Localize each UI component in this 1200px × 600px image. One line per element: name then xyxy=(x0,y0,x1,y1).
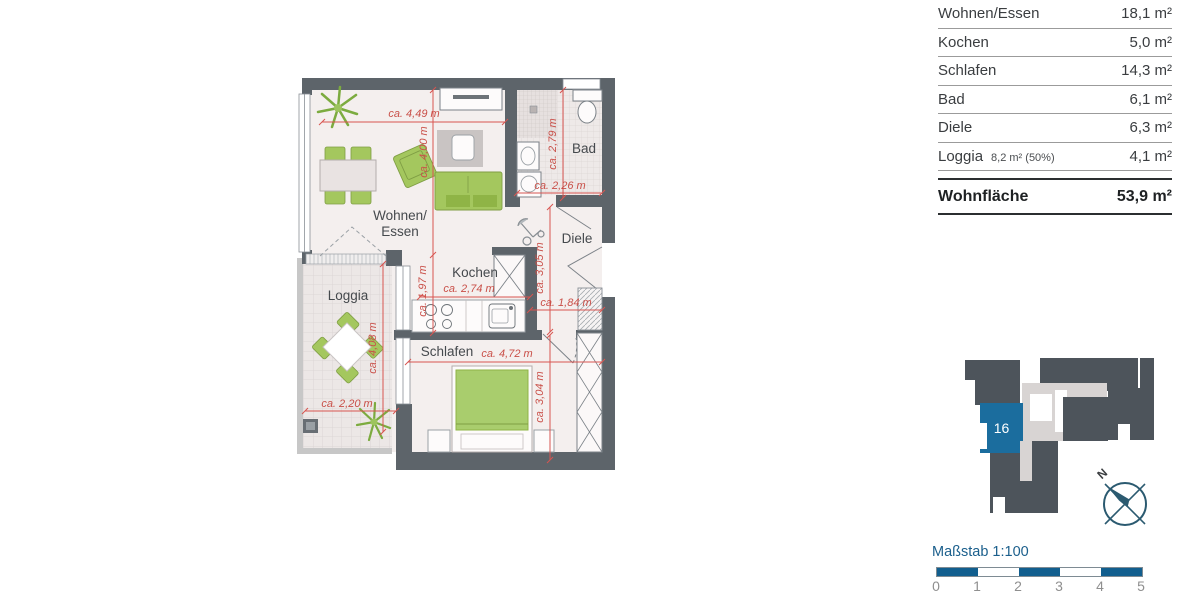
total-label: Wohnfläche xyxy=(938,188,1028,206)
window-loggia-band xyxy=(306,254,386,264)
scale-tick: 5 xyxy=(1137,578,1145,594)
scale-segment xyxy=(978,568,1019,576)
room-name: Loggia xyxy=(938,148,983,165)
area-table: Wohnen/Essen 18,1 m² Kochen 5,0 m² Schla… xyxy=(938,0,1172,215)
floor-plan: ca. 4,49 m ca. 4,00 m ca. 2,79 m ca. 2,2… xyxy=(295,72,625,477)
room-area: 5,0 m² xyxy=(1129,34,1172,51)
label-loggia: Loggia xyxy=(328,288,369,303)
table-row: Kochen 5,0 m² xyxy=(938,29,1172,58)
north-needle xyxy=(1107,486,1130,508)
label-bad: Bad xyxy=(572,141,596,156)
svg-text:ca. 1,97 m: ca. 1,97 m xyxy=(417,265,429,316)
svg-text:ca. 4,72 m: ca. 4,72 m xyxy=(481,348,532,360)
table-row: Loggia 8,2 m² (50%) 4,1 m² xyxy=(938,143,1172,172)
scale-segment xyxy=(1019,568,1060,576)
room-area: 6,3 m² xyxy=(1129,119,1172,136)
building-block xyxy=(1108,358,1154,388)
room-name: Schlafen xyxy=(938,62,996,79)
scale-tick: 1 xyxy=(973,578,981,594)
north-label: N xyxy=(1094,466,1110,482)
apartment-room xyxy=(1030,394,1052,421)
washbasin xyxy=(517,142,539,170)
building-gap xyxy=(965,380,975,405)
page: ca. 4,49 m ca. 4,00 m ca. 2,79 m ca. 2,2… xyxy=(0,0,1200,600)
table-row: Wohnen/Essen 18,1 m² xyxy=(938,0,1172,29)
svg-text:ca. 4,08 m: ca. 4,08 m xyxy=(367,322,379,373)
room-area: 14,3 m² xyxy=(1121,62,1172,79)
scale-numbers: 0 1 2 3 4 5 xyxy=(936,578,1142,596)
total-area: 53,9 m² xyxy=(1117,188,1172,206)
table-total-row: Wohnfläche 53,9 m² xyxy=(938,178,1172,215)
svg-text:ca. 2,74 m: ca. 2,74 m xyxy=(443,283,494,295)
svg-text:ca. 4,49 m: ca. 4,49 m xyxy=(388,108,439,120)
tv xyxy=(453,95,489,99)
toilet xyxy=(578,101,596,123)
room-area: 4,1 m² xyxy=(1129,148,1172,165)
table-row: Schlafen 14,3 m² xyxy=(938,57,1172,86)
bed-pillows xyxy=(461,434,523,449)
scale-tick: 4 xyxy=(1096,578,1104,594)
room-name: Kochen xyxy=(938,34,989,51)
building-gap xyxy=(1118,424,1130,440)
unit-number: 16 xyxy=(994,420,1010,436)
label-wohnen: Wohnen/ xyxy=(373,208,427,223)
svg-text:ca. 1,84 m: ca. 1,84 m xyxy=(540,297,591,309)
building-block xyxy=(1032,441,1058,509)
label-diele: Diele xyxy=(562,231,593,246)
window-bath xyxy=(563,79,600,89)
building-gap xyxy=(993,497,1005,513)
shower-drain xyxy=(530,106,537,113)
wardrobe-hall xyxy=(578,288,602,330)
room-area: 18,1 m² xyxy=(1121,5,1172,22)
building-gap xyxy=(975,423,987,449)
svg-text:Essen: Essen xyxy=(381,224,419,239)
room-area-note: 8,2 m² (50%) xyxy=(991,152,1129,164)
building-block xyxy=(1108,388,1154,440)
compass-icon: N xyxy=(1090,464,1156,534)
toilet-tank xyxy=(573,90,602,101)
svg-text:ca. 3,05 m: ca. 3,05 m xyxy=(534,242,546,293)
sofa xyxy=(435,172,502,210)
building-block xyxy=(1063,397,1108,441)
label-schlafen: Schlafen xyxy=(421,344,474,359)
lounge-chair xyxy=(452,135,474,160)
scale-segment xyxy=(1060,568,1101,576)
building-gap xyxy=(1138,358,1140,388)
bed-duvet xyxy=(456,370,528,430)
svg-text:ca. 4,00 m: ca. 4,00 m xyxy=(418,126,430,177)
scale-tick: 2 xyxy=(1014,578,1022,594)
svg-text:ca. 2,26 m: ca. 2,26 m xyxy=(534,180,585,192)
svg-text:ca. 2,79 m: ca. 2,79 m xyxy=(547,118,559,169)
table-row: Diele 6,3 m² xyxy=(938,114,1172,143)
label-kochen: Kochen xyxy=(452,265,498,280)
scale-title: Maßstab 1:100 xyxy=(932,544,1029,560)
entrance-opening xyxy=(602,243,615,297)
scale-tick: 0 xyxy=(932,578,940,594)
room-name: Bad xyxy=(938,91,965,108)
nightstand-right xyxy=(534,430,554,452)
building-block-light xyxy=(1020,441,1032,481)
svg-text:ca. 3,04 m: ca. 3,04 m xyxy=(534,371,546,422)
scale-bar xyxy=(936,567,1143,577)
table-row: Bad 6,1 m² xyxy=(938,86,1172,115)
scale-segment xyxy=(937,568,978,576)
scale-tick: 3 xyxy=(1055,578,1063,594)
room-name: Wohnen/Essen xyxy=(938,5,1039,22)
dining-table xyxy=(320,160,376,191)
scale-segment xyxy=(1101,568,1142,576)
room-name: Diele xyxy=(938,119,972,136)
room-area: 6,1 m² xyxy=(1129,91,1172,108)
svg-text:ca. 2,20 m: ca. 2,20 m xyxy=(321,398,372,410)
nightstand-left xyxy=(428,430,450,452)
